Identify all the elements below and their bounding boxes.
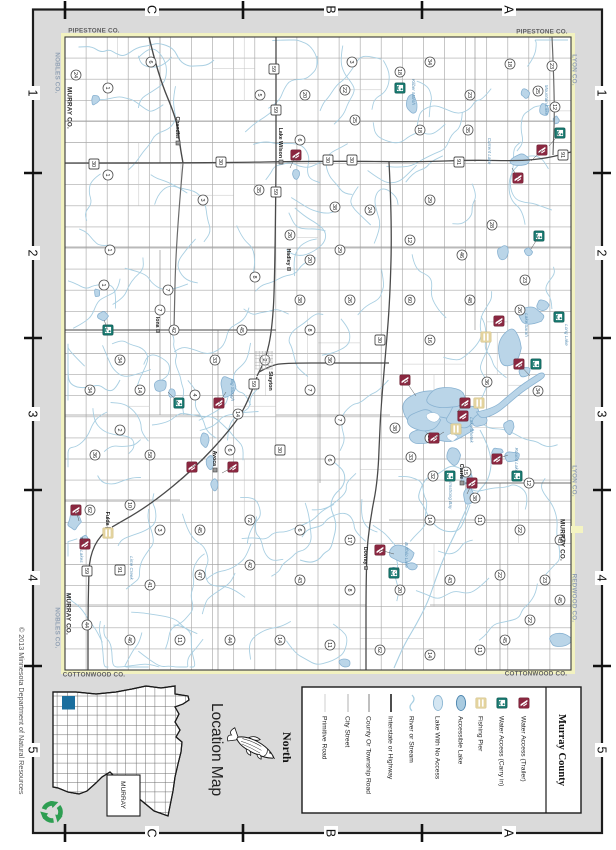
svg-text:Interstate or Highway: Interstate or Highway (387, 716, 394, 780)
svg-text:Lake Shetek: Lake Shetek (469, 417, 474, 443)
svg-text:A: A (502, 5, 516, 14)
svg-text:7: 7 (164, 288, 170, 291)
svg-text:42: 42 (246, 562, 252, 568)
svg-text:1: 1 (106, 248, 112, 251)
svg-text:30: 30 (90, 161, 96, 167)
svg-text:1: 1 (26, 90, 40, 97)
svg-text:Dovray: Dovray (362, 547, 368, 565)
svg-text:4: 4 (595, 575, 609, 582)
svg-text:22: 22 (516, 527, 522, 533)
svg-text:32: 32 (429, 473, 435, 479)
svg-text:12: 12 (551, 104, 557, 110)
svg-text:2: 2 (116, 428, 122, 431)
svg-text:23: 23 (541, 577, 547, 583)
svg-text:43: 43 (296, 577, 302, 583)
svg-text:Buffalo Lake: Buffalo Lake (404, 542, 409, 568)
svg-text:8: 8 (346, 588, 352, 591)
svg-text:30: 30 (348, 157, 354, 163)
svg-text:5: 5 (26, 747, 40, 754)
svg-text:34: 34 (86, 387, 92, 393)
svg-text:LYON CO.: LYON CO. (571, 54, 578, 86)
svg-text:91: 91 (559, 152, 565, 158)
svg-text:35: 35 (464, 127, 470, 133)
svg-text:23: 23 (521, 277, 527, 283)
svg-text:26: 26 (346, 297, 352, 303)
svg-text:18: 18 (506, 61, 512, 67)
svg-text:30: 30 (276, 447, 282, 453)
svg-text:Lake Sarah: Lake Sarah (524, 313, 529, 337)
svg-text:2: 2 (595, 250, 609, 257)
svg-text:36: 36 (483, 379, 489, 385)
svg-text:COTTONWOOD CO.: COTTONWOOD CO. (505, 671, 568, 678)
svg-text:7: 7 (306, 388, 312, 391)
svg-text:Currie: Currie (458, 464, 464, 479)
svg-text:91: 91 (116, 567, 122, 573)
svg-text:60: 60 (406, 297, 412, 303)
svg-text:25: 25 (351, 117, 357, 123)
svg-text:Location Map: Location Map (208, 703, 225, 796)
svg-text:38: 38 (296, 297, 302, 303)
svg-text:8: 8 (306, 328, 312, 331)
svg-text:17: 17 (346, 537, 352, 543)
svg-text:Water Access (Trailer): Water Access (Trailer) (520, 716, 527, 782)
svg-text:36: 36 (91, 452, 97, 458)
svg-text:22: 22 (526, 617, 532, 623)
svg-text:Lake With No Access: Lake With No Access (434, 716, 441, 780)
svg-text:91: 91 (455, 159, 461, 165)
svg-text:47: 47 (196, 572, 202, 578)
svg-text:26: 26 (516, 307, 522, 313)
svg-text:Big Slough: Big Slough (230, 379, 235, 402)
svg-text:MURRAY CO.: MURRAY CO. (559, 519, 566, 561)
svg-text:8: 8 (251, 275, 257, 278)
svg-text:3: 3 (348, 60, 354, 63)
svg-text:3: 3 (595, 411, 609, 418)
svg-text:30: 30 (376, 337, 382, 343)
svg-text:12: 12 (525, 480, 531, 486)
svg-text:30: 30 (324, 157, 330, 163)
svg-text:23: 23 (466, 92, 472, 98)
svg-text:16: 16 (426, 337, 432, 343)
svg-text:4: 4 (191, 393, 197, 396)
svg-text:Iona: Iona (154, 317, 160, 328)
svg-text:42: 42 (170, 327, 176, 333)
svg-text:62: 62 (86, 507, 92, 513)
svg-text:6: 6 (226, 448, 232, 451)
svg-text:29: 29 (336, 247, 342, 253)
svg-text:PIPESTONE CO.: PIPESTONE CO. (516, 29, 568, 36)
svg-text:COTTONWOOD CO.: COTTONWOOD CO. (63, 672, 126, 679)
svg-text:59: 59 (83, 568, 89, 574)
svg-text:Current Lake: Current Lake (487, 138, 492, 165)
svg-text:18: 18 (416, 127, 422, 133)
svg-text:Long Lake: Long Lake (564, 324, 569, 346)
svg-text:14: 14 (426, 517, 432, 523)
svg-text:LYON CO.: LYON CO. (571, 465, 578, 497)
svg-text:5: 5 (256, 93, 262, 96)
svg-text:Murray County: Murray County (556, 714, 567, 787)
svg-text:45: 45 (238, 327, 244, 333)
svg-text:River or Stream: River or Stream (408, 716, 415, 763)
svg-text:38: 38 (471, 495, 477, 501)
svg-text:30: 30 (217, 159, 223, 165)
svg-text:28: 28 (488, 222, 494, 228)
svg-text:B: B (324, 5, 338, 13)
svg-text:11: 11 (326, 642, 332, 648)
svg-text:7: 7 (156, 308, 162, 311)
svg-text:6: 6 (326, 458, 332, 461)
svg-text:46: 46 (126, 637, 132, 643)
svg-text:11: 11 (176, 637, 182, 643)
svg-text:NOBLES CO.: NOBLES CO. (54, 52, 61, 93)
svg-text:MURRAY CO.: MURRAY CO. (66, 87, 73, 129)
svg-text:59: 59 (272, 107, 278, 113)
svg-text:14: 14 (276, 637, 282, 643)
svg-text:3: 3 (199, 198, 205, 201)
svg-text:58: 58 (146, 452, 152, 458)
svg-text:C: C (145, 828, 159, 837)
svg-text:Accessible Lake: Accessible Lake (457, 716, 464, 765)
svg-text:1: 1 (100, 283, 106, 286)
svg-text:City Street: City Street (344, 716, 351, 747)
svg-text:PIPESTONE CO.: PIPESTONE CO. (68, 28, 120, 35)
svg-text:44: 44 (83, 622, 89, 628)
svg-text:20: 20 (306, 257, 312, 263)
svg-text:Armstrong Bay: Armstrong Bay (448, 478, 453, 510)
svg-text:59: 59 (272, 189, 278, 195)
svg-text:MURRAY: MURRAY (119, 781, 126, 809)
svg-text:34: 34 (426, 59, 432, 65)
svg-text:Mountain Lake: Mountain Lake (544, 85, 549, 116)
svg-text:34: 34 (534, 388, 540, 394)
svg-text:4: 4 (26, 575, 40, 582)
svg-text:Slayton: Slayton (267, 371, 273, 390)
svg-text:© 2013 Minnesota Department of: © 2013 Minnesota Department of Natural R… (17, 627, 26, 795)
svg-text:34: 34 (116, 357, 122, 363)
svg-text:20: 20 (301, 92, 307, 98)
svg-text:North: North (280, 732, 294, 763)
svg-text:6: 6 (147, 60, 153, 63)
svg-text:5: 5 (595, 747, 609, 754)
svg-text:Fishing Pier: Fishing Pier (477, 716, 484, 752)
svg-text:REDWOOD CO.: REDWOOD CO. (571, 574, 578, 623)
svg-text:14: 14 (234, 411, 240, 417)
svg-text:41: 41 (146, 582, 152, 588)
svg-text:7: 7 (336, 418, 342, 421)
svg-text:Avoca: Avoca (211, 451, 217, 466)
svg-text:24: 24 (366, 207, 372, 213)
svg-text:11: 11 (476, 517, 482, 523)
svg-text:6: 6 (296, 138, 302, 141)
svg-text:35: 35 (255, 187, 261, 193)
svg-text:A: A (502, 829, 516, 838)
svg-text:18: 18 (396, 69, 402, 75)
svg-text:43: 43 (446, 577, 452, 583)
svg-text:Fulda: Fulda (104, 512, 110, 526)
svg-text:59: 59 (250, 381, 256, 387)
svg-text:Round Lake: Round Lake (514, 448, 519, 473)
svg-text:14: 14 (136, 387, 142, 393)
svg-text:20: 20 (396, 587, 402, 593)
svg-text:Chandler: Chandler (174, 117, 180, 139)
svg-text:MURRAY CO.: MURRAY CO. (65, 593, 72, 635)
svg-text:38: 38 (391, 425, 397, 431)
svg-text:59: 59 (270, 66, 276, 72)
svg-text:14: 14 (426, 652, 432, 658)
svg-text:29: 29 (426, 197, 432, 203)
svg-text:36: 36 (326, 357, 332, 363)
svg-text:1: 1 (595, 90, 609, 97)
svg-text:Water Access (Carry in): Water Access (Carry in) (498, 716, 505, 786)
svg-text:72: 72 (246, 517, 252, 523)
svg-text:3: 3 (156, 528, 162, 531)
svg-text:NOBLES CO.: NOBLES CO. (54, 607, 61, 648)
svg-text:11: 11 (476, 647, 482, 653)
svg-text:22: 22 (496, 572, 502, 578)
svg-text:33: 33 (211, 357, 217, 363)
svg-text:County Or Township Road: County Or Township Road (365, 716, 372, 794)
svg-text:46: 46 (458, 252, 464, 258)
svg-text:25: 25 (534, 88, 540, 94)
svg-text:45: 45 (556, 597, 562, 603)
svg-text:45: 45 (501, 637, 507, 643)
svg-text:12: 12 (406, 237, 412, 243)
svg-text:6: 6 (296, 528, 302, 531)
svg-text:45: 45 (196, 527, 202, 533)
svg-text:44: 44 (226, 637, 232, 643)
svg-text:Lime Creek: Lime Creek (129, 556, 134, 580)
svg-text:3: 3 (26, 411, 40, 418)
svg-text:2: 2 (26, 250, 40, 257)
svg-text:Hadley: Hadley (285, 248, 291, 265)
svg-text:48: 48 (466, 297, 472, 303)
svg-text:33: 33 (407, 454, 413, 460)
svg-text:22: 22 (341, 87, 347, 93)
svg-text:C: C (145, 5, 159, 14)
svg-text:24: 24 (72, 72, 78, 78)
svg-text:Kilber Marsh: Kilber Marsh (411, 79, 416, 105)
svg-text:Primitive Road: Primitive Road (321, 716, 328, 760)
svg-text:26: 26 (286, 232, 292, 238)
svg-text:1: 1 (104, 173, 110, 176)
svg-text:Lake Wilson: Lake Wilson (277, 128, 283, 158)
svg-text:1: 1 (104, 86, 110, 89)
svg-text:B: B (324, 829, 338, 837)
svg-text:10: 10 (126, 502, 132, 508)
svg-text:38: 38 (331, 204, 337, 210)
svg-text:23: 23 (548, 63, 554, 69)
svg-text:62: 62 (376, 647, 382, 653)
